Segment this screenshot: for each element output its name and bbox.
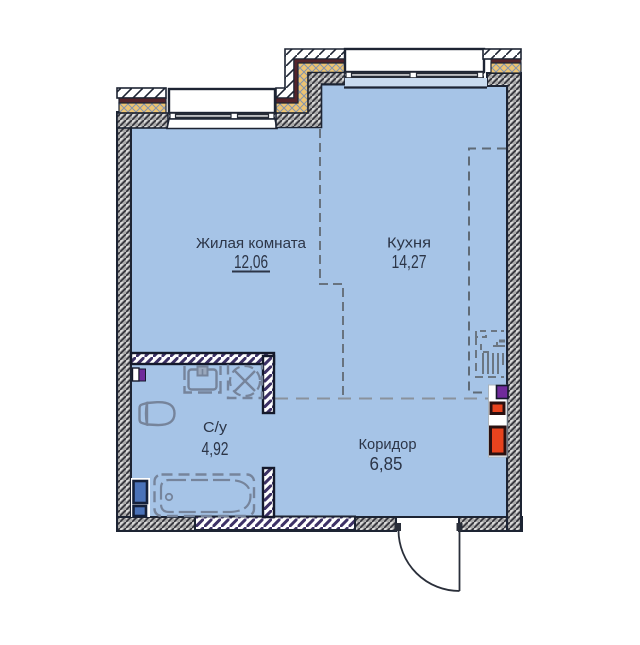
svg-text:Коридор: Коридор (359, 436, 417, 453)
svg-text:Жилая комната: Жилая комната (196, 235, 307, 252)
svg-text:14,27: 14,27 (392, 252, 427, 272)
svg-text:6,85: 6,85 (370, 454, 403, 474)
svg-text:С/у: С/у (203, 419, 228, 436)
svg-text:4,92: 4,92 (202, 439, 229, 459)
svg-text:Кухня: Кухня (387, 235, 431, 252)
svg-text:12,06: 12,06 (234, 252, 268, 272)
